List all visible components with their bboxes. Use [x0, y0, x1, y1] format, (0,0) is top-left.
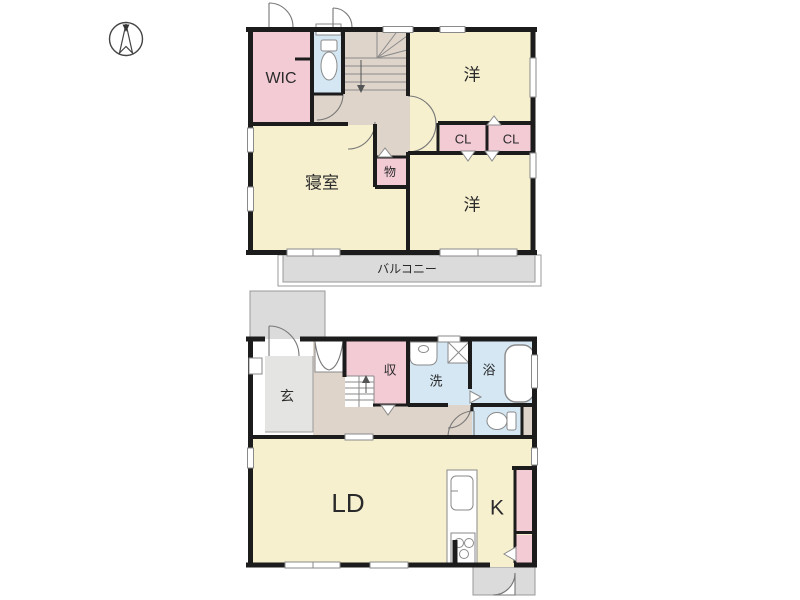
compass-north-icon	[110, 23, 143, 56]
bathtub-icon	[505, 345, 534, 402]
toilet-icon-1f	[487, 412, 516, 430]
floor2-rooms	[248, 27, 535, 255]
room-label-kitchen: K	[490, 498, 504, 519]
room-label-closet2: CL	[503, 133, 520, 146]
room-label-western1: 洋	[464, 67, 481, 84]
room-label-entrance: 玄	[280, 389, 294, 403]
entrance-porch	[250, 291, 325, 341]
kitchen-counter	[447, 470, 477, 566]
toilet-icon-2f	[321, 40, 337, 80]
washbasin-icon	[410, 342, 437, 365]
room-label-closet1: CL	[455, 133, 472, 146]
floorplan-drawing	[0, 0, 800, 600]
floorplan-canvas: WIC 洋 CL CL 寝室 物 洋 バルコニー 玄 収 洗 浴 LD K	[0, 0, 800, 600]
room-label-western2: 洋	[464, 197, 481, 214]
washing-machine-icon	[448, 342, 469, 363]
room-label-storage2: 物	[384, 166, 396, 178]
room-label-bath: 浴	[482, 364, 495, 377]
room-label-bedroom: 寝室	[305, 175, 339, 192]
room-label-washroom: 洗	[429, 375, 442, 388]
kitchen-sink-icon	[451, 476, 473, 510]
room-label-balcony: バルコニー	[377, 263, 437, 275]
room-label-living-dining: LD	[331, 490, 364, 516]
room-label-storage1: 収	[383, 364, 396, 377]
room-label-wic: WIC	[265, 71, 296, 87]
back-door-step	[473, 567, 535, 595]
